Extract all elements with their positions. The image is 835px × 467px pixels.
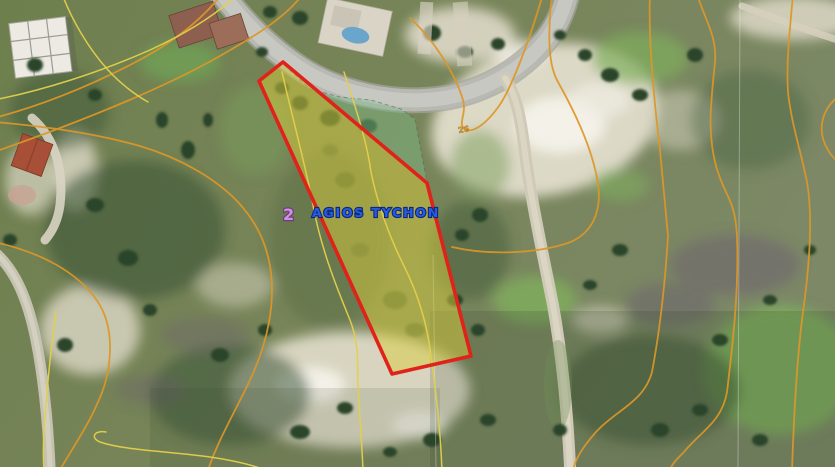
imagery-seam (430, 311, 835, 467)
greenhouse-building (9, 16, 78, 78)
satellite-map[interactable]: 26 2 AGIOS TYCHON (0, 0, 835, 467)
satellite-imagery: 26 2 AGIOS TYCHON (0, 0, 835, 467)
parcel-number-label[interactable]: 2 (283, 205, 294, 224)
place-label: AGIOS TYCHON (312, 205, 440, 220)
